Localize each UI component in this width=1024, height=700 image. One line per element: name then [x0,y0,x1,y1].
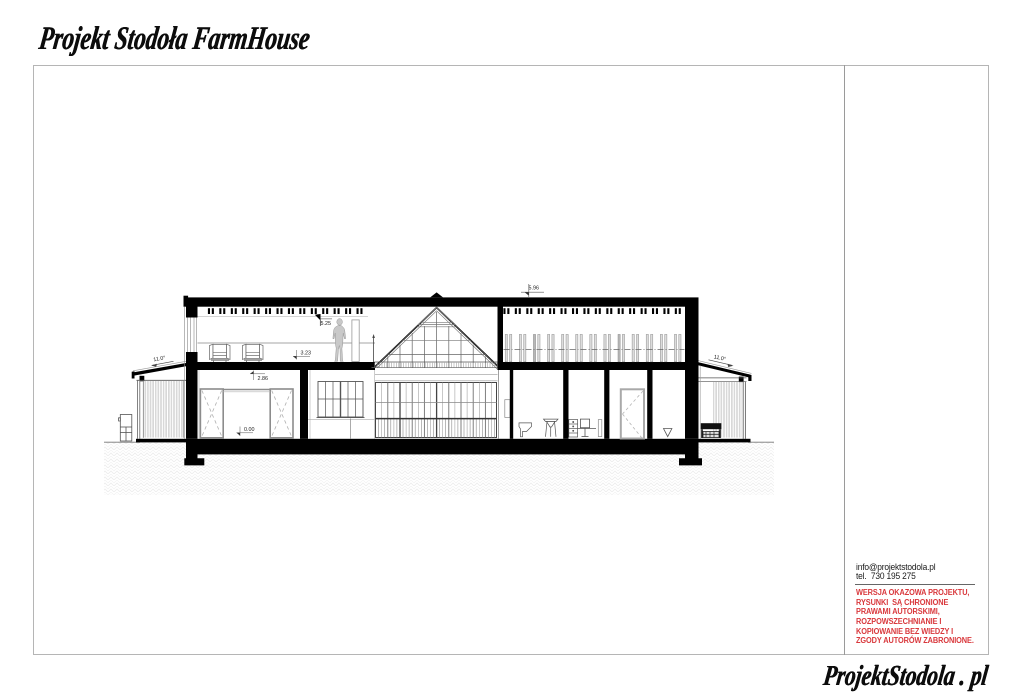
svg-text:0.00: 0.00 [244,427,255,433]
svg-text:2.86: 2.86 [258,376,269,382]
svg-text:11.0°: 11.0° [153,355,166,363]
svg-text:5.25: 5.25 [321,321,332,327]
svg-text:5.96: 5.96 [529,286,540,292]
svg-text:3.23: 3.23 [301,351,312,357]
